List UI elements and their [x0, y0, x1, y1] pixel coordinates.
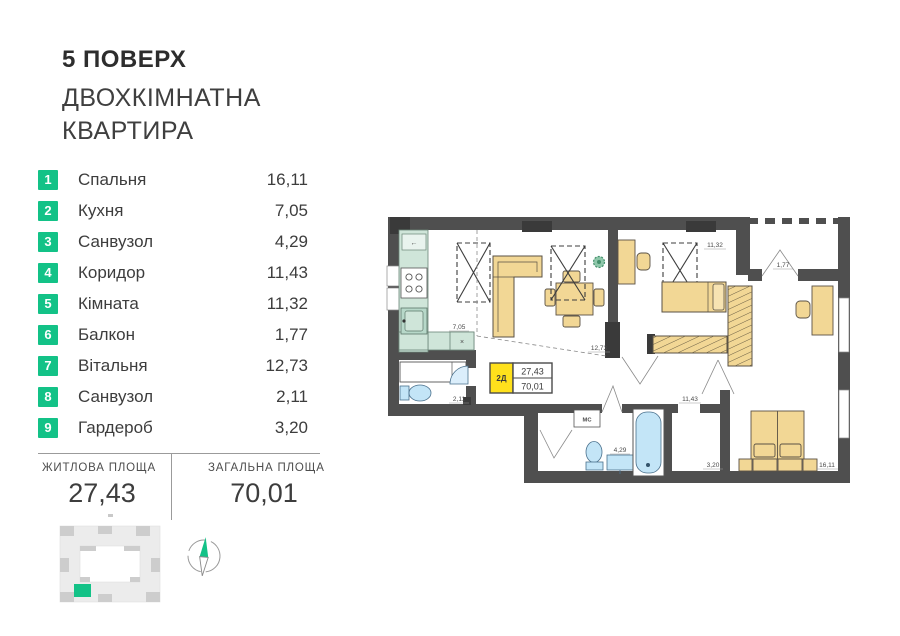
chair	[796, 301, 810, 318]
summary-column-divider	[171, 453, 172, 520]
room-area: 16,11	[267, 170, 308, 190]
room-name: Коридор	[78, 263, 267, 283]
plant-icon	[594, 257, 605, 268]
room-number-badge: 3	[38, 232, 58, 252]
room-name: Кімната	[78, 294, 267, 314]
unit-living-area: 27,43	[521, 367, 544, 377]
room-list-item: 4 Коридор 11,43	[38, 257, 308, 288]
room-number-badge: 5	[38, 294, 58, 314]
dim-bedroom: 16,11	[819, 462, 835, 469]
room-list-item: 3 Санвузол 4,29	[38, 226, 308, 257]
room-list-item: 8 Санвузол 2,11	[38, 381, 308, 412]
room-list-item: 6 Балкон 1,77	[38, 319, 308, 350]
compass-icon	[183, 530, 225, 582]
floor-plan: ← ×	[386, 210, 856, 488]
unit-total-area: 70,01	[521, 382, 544, 392]
sink-icon	[401, 308, 427, 334]
room-area: 1,77	[275, 325, 308, 345]
room-number-badge: 1	[38, 170, 58, 190]
desk	[796, 286, 833, 335]
room-number-badge: 6	[38, 325, 58, 345]
room-area: 12,73	[265, 356, 308, 376]
floor-title: 5 ПОВЕРХ	[62, 46, 261, 74]
dim-corridor: 11,43	[682, 396, 698, 403]
current-unit-highlight	[74, 584, 91, 597]
svg-text:×: ×	[460, 339, 464, 346]
room-list-item: 2 Кухня 7,05	[38, 195, 308, 226]
room-number-badge: 7	[38, 356, 58, 376]
room-number-badge: 4	[38, 263, 58, 283]
desk	[618, 240, 650, 284]
room-name: Балкон	[78, 325, 275, 345]
toilet-icon	[586, 442, 603, 471]
bathroom-fixtures: МС	[574, 409, 664, 476]
room-area: 11,32	[267, 294, 308, 314]
dim-wardrobe: 3,20	[707, 462, 720, 469]
room-area: 7,05	[275, 201, 308, 221]
total-area-label: ЗАГАЛЬНА ПЛОЩА	[208, 462, 320, 474]
room-name: Спальня	[78, 170, 267, 190]
chair	[637, 253, 650, 270]
bed	[662, 282, 726, 312]
svg-text:МС: МС	[582, 418, 592, 424]
summary-divider	[38, 453, 320, 454]
room-name: Санвузол	[78, 232, 275, 252]
sofa	[493, 256, 542, 337]
bathtub-icon	[633, 409, 664, 476]
header: 5 ПОВЕРХ ДВОХКІМНАТНА КВАРТИРА	[62, 46, 261, 148]
double-bed	[739, 411, 817, 471]
room-area: 4,29	[275, 232, 308, 252]
floor-plan-page: { "header": { "floor_title": "5 ПОВЕРХ",…	[0, 0, 900, 636]
unit-badge: 2Д 27,43 70,01	[490, 363, 552, 393]
living-area-label: ЖИТЛОВА ПЛОЩА	[42, 462, 162, 474]
unit-type-label: 2Д	[496, 374, 506, 383]
room-list-item: 1 Спальня 16,11	[38, 164, 308, 195]
toilet-icon	[400, 385, 431, 401]
room-name: Гардероб	[78, 418, 275, 438]
total-area-value: 70,01	[208, 478, 320, 509]
subtitle-line-2: КВАРТИРА	[62, 115, 261, 148]
room-area: 11,43	[267, 263, 308, 283]
building-locator-icon	[50, 514, 170, 614]
room-list-item: 7 Вітальня 12,73	[38, 350, 308, 381]
room-list-item: 9 Гардероб 3,20	[38, 412, 308, 443]
apartment-subtitle: ДВОХКІМНАТНА КВАРТИРА	[62, 82, 261, 148]
room-name: Кухня	[78, 201, 275, 221]
room-area: 2,11	[276, 387, 308, 407]
svg-text:←: ←	[411, 240, 418, 247]
room-area: 3,20	[275, 418, 308, 438]
dim-wc: 2,11	[453, 396, 466, 403]
dim-kitchen: 7,05	[453, 324, 466, 331]
room-name: Вітальня	[78, 356, 265, 376]
dim-balcony: 1,77	[777, 262, 790, 269]
subtitle-line-1: ДВОХКІМНАТНА	[62, 82, 261, 115]
room-number-badge: 8	[38, 387, 58, 407]
dim-bathroom: 4,29	[614, 447, 627, 454]
living-area-value: 27,43	[42, 478, 162, 509]
dim-living: 12,73	[591, 345, 608, 352]
dim-room: 11,32	[707, 242, 723, 249]
room-list: 1 Спальня 16,11 2 Кухня 7,05 3 Санвузол …	[38, 164, 308, 443]
living-area-block: ЖИТЛОВА ПЛОЩА 27,43	[42, 462, 162, 509]
total-area-block: ЗАГАЛЬНА ПЛОЩА 70,01	[208, 462, 320, 509]
stove-icon	[401, 268, 427, 298]
dining-table	[545, 271, 604, 327]
room-number-badge: 2	[38, 201, 58, 221]
room-list-item: 5 Кімната 11,32	[38, 288, 308, 319]
room-number-badge: 9	[38, 418, 58, 438]
room-name: Санвузол	[78, 387, 276, 407]
